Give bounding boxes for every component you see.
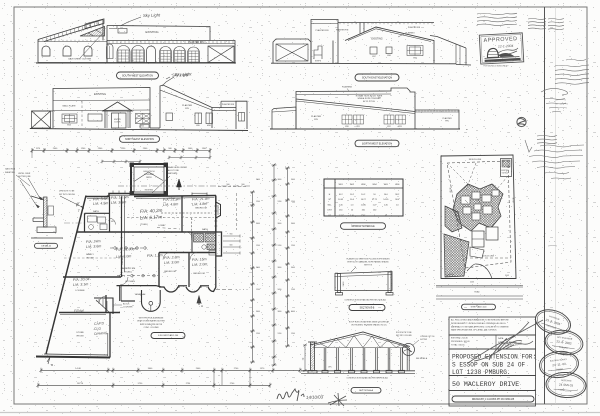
svg-text:W08: W08 — [387, 55, 391, 57]
svg-text:1200: 1200 — [256, 245, 260, 247]
svg-text:3600: 3600 — [291, 223, 295, 225]
svg-text:EXISTING: EXISTING — [145, 190, 154, 192]
svg-text:W10: W10 — [345, 126, 349, 128]
svg-text:1200: 1200 — [291, 333, 295, 335]
svg-text:L/A: 2.0m: L/A: 2.0m — [192, 262, 208, 267]
svg-text:L/A: 3.1m: L/A: 3.1m — [73, 282, 89, 287]
svg-text:STEPS: STEPS — [315, 61, 322, 63]
svg-text:18774: 18774 — [77, 383, 84, 385]
svg-text:LOBBY: LOBBY — [158, 225, 166, 227]
svg-text:SECTION A-A: SECTION A-A — [359, 389, 373, 392]
svg-text:W05: W05 — [196, 125, 200, 127]
svg-text:BATH: BATH — [93, 210, 99, 213]
svg-text:1200: 1200 — [291, 245, 295, 247]
svg-text:RWP DOWN PIPE SET IN: RWP DOWN PIPE SET IN — [140, 324, 163, 326]
svg-text:COVERED: COVERED — [144, 174, 154, 176]
svg-text:ALLS TO BE: ALLS TO BE — [168, 169, 179, 172]
svg-text:L/A: 6.0m: L/A: 6.0m — [116, 254, 132, 259]
svg-text:KITCHEN: KITCHEN — [125, 281, 135, 283]
svg-text:WITH S/L BY GARAGES, ROPE PASS: WITH S/L BY GARAGES, ROPE PASSED SPACED — [347, 261, 389, 264]
svg-text:SOUTH WEST ELEVATION: SOUTH WEST ELEVATION — [122, 74, 153, 77]
svg-text:W13: W13 — [398, 126, 402, 128]
svg-text:1200: 1200 — [291, 289, 295, 291]
svg-text:3600: 3600 — [278, 179, 282, 181]
svg-text:CLG: CLG — [94, 326, 102, 331]
svg-text:1.035: 1.035 — [361, 204, 367, 206]
svg-text:HIGH TECH: HIGH TECH — [144, 171, 156, 173]
svg-text:1200: 1200 — [256, 333, 260, 335]
svg-text:PROPOSED EXTENSION FOR:: PROPOSED EXTENSION FOR: — [452, 354, 536, 361]
svg-text:SHEETING: SHEETING — [5, 172, 15, 174]
svg-text:1200: 1200 — [256, 289, 260, 291]
svg-text:CONC. COLUMN: CONC. COLUMN — [144, 327, 159, 329]
svg-text:PLASTER: PLASTER — [442, 117, 452, 120]
svg-text:50 MACLEROY DRIVE: 50 MACLEROY DRIVE — [452, 381, 519, 388]
svg-text:450: 450 — [446, 275, 449, 277]
svg-text:600: 600 — [230, 245, 233, 247]
svg-text:PLASTER FIN: PLASTER FIN — [336, 29, 349, 32]
svg-text:OUT BLD: OUT BLD — [502, 173, 509, 175]
svg-text:SITE PLAN 1:200: SITE PLAN 1:200 — [471, 306, 488, 309]
svg-text:1200: 1200 — [256, 201, 260, 203]
svg-text:ROOM: ROOM — [87, 258, 94, 260]
svg-text:CONSTRUCTION DETAILS AS PER SE: CONSTRUCTION DETAILS AS PER SECTION A-A — [346, 377, 388, 380]
svg-text:14.05: 14.05 — [383, 199, 389, 201]
svg-text:SET INTO CEILING: SET INTO CEILING — [59, 194, 76, 196]
svg-text:1200: 1200 — [291, 201, 295, 203]
svg-text:SECTION B-B: SECTION B-B — [360, 307, 375, 309]
svg-text:F/A: 1.2m: F/A: 1.2m — [147, 253, 163, 258]
svg-text:EXISTING: EXISTING — [371, 38, 382, 41]
svg-text:3600: 3600 — [256, 223, 260, 225]
svg-text:3M BLDG LINE: 3M BLDG LINE — [469, 159, 482, 161]
svg-text:FIN: FIN — [185, 108, 189, 110]
svg-text:WINDOW SCHEDULE: WINDOW SCHEDULE — [351, 226, 375, 228]
svg-text:30.48: 30.48 — [505, 275, 509, 277]
svg-text:45° 30': 45° 30' — [450, 187, 452, 193]
svg-text:F/A: 2.8m: F/A: 2.8m — [164, 255, 180, 260]
svg-text:W06: W06 — [207, 125, 211, 127]
svg-text:L/A: 3.6m: L/A: 3.6m — [86, 244, 102, 249]
svg-text:LOUNGE: LOUNGE — [75, 290, 85, 292]
svg-text:45° 30': 45° 30' — [513, 197, 515, 203]
svg-text:AT 35 PITCH: AT 35 PITCH — [363, 100, 375, 103]
svg-text:L/A: 3.0m: L/A: 3.0m — [164, 260, 180, 265]
svg-text:PLASTER: PLASTER — [182, 104, 192, 107]
svg-text:FLASHING: FLASHING — [342, 86, 352, 89]
svg-text:FAMILY: FAMILY — [86, 253, 94, 256]
svg-text:MATERIALS TO BE SABS APPROVED.: MATERIALS TO BE SABS APPROVED. CONCRETE … — [451, 325, 510, 328]
svg-text:F/Total: F/Total — [74, 308, 84, 313]
svg-text:ON TRUSSES, TRUSSES SPACED 760: ON TRUSSES, TRUSSES SPACED 760 C/C — [351, 324, 388, 327]
svg-text:14/10/03: 14/10/03 — [306, 394, 324, 400]
svg-text:BEDROOM: BEDROOM — [164, 271, 175, 273]
svg-text:LAUNDRY RM: LAUNDRY RM — [121, 267, 136, 270]
svg-text:900: 900 — [227, 184, 230, 186]
svg-text:10.27: 10.27 — [361, 199, 367, 201]
svg-text:FLASHING: FLASHING — [406, 32, 416, 35]
svg-text:900: 900 — [242, 184, 245, 186]
svg-text:NORTH EAST ELEVATION: NORTH EAST ELEVATION — [125, 138, 154, 141]
svg-text:3600: 3600 — [291, 179, 295, 181]
svg-text:PLASTER FIN: PLASTER FIN — [222, 103, 235, 106]
svg-text:DATE:: DATE: — [498, 337, 504, 340]
svg-text:14.46: 14.46 — [75, 368, 81, 370]
svg-text:B: B — [51, 363, 53, 367]
svg-text:TOTAL: 316.55: TOTAL: 316.55 — [451, 344, 465, 347]
svg-text:WITH T/S: WITH T/S — [364, 265, 373, 267]
svg-text:97.71: 97.71 — [372, 199, 378, 201]
svg-text:WC: WC — [111, 221, 115, 223]
svg-text:F/A: 15m: F/A: 15m — [192, 257, 207, 262]
svg-text:ROOF NOTE TO BE: ROOF NOTE TO BE — [396, 332, 412, 334]
svg-text:WITH PROFILE ALUMINIUM: WITH PROFILE ALUMINIUM — [139, 317, 164, 320]
svg-text:1200: 1200 — [278, 201, 282, 203]
svg-text:900: 900 — [230, 234, 233, 236]
svg-text:GUTTER: GUTTER — [420, 339, 428, 341]
svg-text:PLASTER FIN: PLASTER FIN — [316, 29, 329, 32]
svg-text:DOOR: DOOR — [115, 122, 122, 124]
svg-text:3600: 3600 — [291, 311, 295, 313]
svg-text:DRAWN BY C JACOBS PH 033 38614: DRAWN BY C JACOBS PH 033 3861435 — [472, 398, 515, 401]
svg-text:PROPOSED: 102.09: PROPOSED: 102.09 — [451, 341, 470, 343]
svg-text:SABS SPECIFICATIONS. DPC AT AL: SABS SPECIFICATIONS. DPC AT ALL SALT LEV… — [451, 329, 497, 332]
svg-text:25.63: 25.63 — [470, 282, 474, 284]
svg-text:BATH: BATH — [202, 228, 208, 231]
svg-text:30 BLDG LINE: 30 BLDG LINE — [482, 256, 495, 258]
svg-text:PLASTER 150 SHEETS IN PULLING: PLASTER 150 SHEETS IN PULLING ROPE SPACE… — [346, 258, 390, 261]
svg-text:BEDROOM: BEDROOM — [193, 273, 204, 275]
svg-text:VERANDAH: VERANDAH — [135, 293, 146, 296]
svg-text:STORE: STORE — [76, 332, 84, 334]
svg-text:FIN: FIN — [314, 119, 318, 121]
svg-text:W07: W07 — [372, 56, 376, 58]
svg-text:BEDROOM: BEDROOM — [195, 208, 206, 210]
svg-text:Sky Light: Sky Light — [143, 12, 161, 18]
svg-text:1200: 1200 — [278, 333, 282, 335]
svg-text:EXISTING: EXISTING — [94, 92, 106, 96]
svg-text:LOOKED OUT 150: LOOKED OUT 150 — [420, 336, 434, 338]
svg-text:S ESSOP ON SUB 24 OF: S ESSOP ON SUB 24 OF — [452, 362, 525, 369]
svg-text:EXISTING: 214.46: EXISTING: 214.46 — [451, 338, 468, 340]
svg-text:LOT 1238 PMBURG.: LOT 1238 PMBURG. — [452, 369, 511, 376]
svg-text:MATCHED: MATCHED — [168, 172, 178, 175]
svg-text:PATIO: PATIO — [146, 176, 152, 179]
svg-text:3600: 3600 — [256, 267, 260, 269]
svg-text:2.4 M: 2.4 M — [343, 281, 345, 286]
svg-text:PLASTER FIN: PLASTER FIN — [408, 26, 421, 29]
svg-text:WALL PLATE: WALL PLATE — [62, 105, 76, 108]
svg-text:ROAD: ROAD — [474, 291, 480, 294]
svg-text:EXISTING: EXISTING — [145, 30, 158, 34]
svg-text:F/A: 24m: F/A: 24m — [86, 239, 101, 244]
svg-text:BEAM LEVEL UNDER: BEAM LEVEL UNDER — [168, 166, 188, 169]
svg-text:CAP'D: CAP'D — [94, 321, 105, 326]
svg-text:W: W — [329, 199, 331, 201]
svg-text:3600: 3600 — [278, 267, 282, 269]
svg-text:S/PALE ROPE TRUSSES: S/PALE ROPE TRUSSES — [357, 97, 381, 100]
svg-text:m: m — [466, 129, 468, 131]
svg-text:(TILED): (TILED) — [124, 272, 132, 274]
svg-text:3600: 3600 — [278, 311, 282, 313]
svg-text:W03: W03 — [67, 125, 71, 127]
svg-text:3600: 3600 — [278, 223, 282, 225]
svg-text:L/A: 3.6m: L/A: 3.6m — [111, 200, 127, 205]
svg-text:CONSTRUCTION DETAILS AS PER SE: CONSTRUCTION DETAILS AS PER SECTION A-A — [344, 299, 386, 302]
svg-text:L/A: 4.8m: L/A: 4.8m — [192, 202, 208, 207]
svg-text:BLOCK: BLOCK — [123, 304, 130, 306]
svg-text:FIN: FIN — [445, 121, 449, 123]
svg-text:14.05: 14.05 — [338, 199, 344, 201]
svg-text:FOR MSUNDUZI MUNICIPALITY: FOR MSUNDUZI MUNICIPALITY — [483, 65, 509, 68]
svg-text:DETAIL A: DETAIL A — [41, 245, 51, 248]
svg-text:EXISTING: EXISTING — [501, 170, 509, 172]
svg-text:SEE DETAIL A: SEE DETAIL A — [416, 357, 428, 360]
svg-text:W11: W11 — [356, 126, 359, 128]
svg-text:Sky Light: Sky Light — [175, 71, 193, 77]
svg-text:2.6: 2.6 — [303, 358, 305, 361]
svg-text:1200: 1200 — [278, 289, 282, 291]
svg-text:SOUTH EAST ELEVATION: SOUTH EAST ELEVATION — [362, 76, 392, 79]
svg-text:SET INTO COLUMN: SET INTO COLUMN — [396, 335, 412, 337]
svg-text:ROMAN TILES IN S/LT RATE: ROMAN TILES IN S/LT RATE — [356, 95, 383, 98]
svg-text:COUNTER: COUNTER — [123, 307, 133, 309]
svg-text:L/A: 4.5m: L/A: 4.5m — [93, 201, 109, 206]
svg-text:PLASTER: PLASTER — [311, 115, 321, 118]
svg-text:L/A: 4.8m: L/A: 4.8m — [163, 202, 179, 207]
svg-text:GUTTER LINE: GUTTER LINE — [18, 176, 31, 178]
svg-text:1200: 1200 — [278, 245, 282, 247]
svg-text:ROOF TILES ON BATTENS 38X38 ON: ROOF TILES ON BATTENS 38X38 ON OVERLAY — [349, 321, 390, 324]
svg-text:12-1-2004: 12-1-2004 — [498, 44, 514, 49]
svg-text:(TILED): (TILED) — [140, 224, 148, 226]
svg-text:W09: W09 — [413, 58, 417, 60]
svg-text:ROOM: ROOM — [77, 336, 84, 338]
svg-text:WITH STORM WATER GUTTER: WITH STORM WATER GUTTER — [137, 320, 165, 323]
svg-text:WORK BEGINS. IT LINTELS OVER A: WORK BEGINS. IT LINTELS OVER ALL OPENING… — [451, 322, 506, 325]
svg-text:GALV IRON: GALV IRON — [5, 168, 16, 171]
svg-text:W12: W12 — [387, 126, 391, 128]
svg-text:DPM NOTE TO BE: DPM NOTE TO BE — [59, 191, 75, 193]
svg-text:W02: W02 — [140, 126, 144, 128]
svg-text:NORTH WEST ELEVATION: NORTH WEST ELEVATION — [362, 142, 392, 145]
svg-text:GALV SHEET GUTTER: GALV SHEET GUTTER — [68, 58, 92, 61]
svg-text:3600: 3600 — [291, 267, 295, 269]
svg-text:3600: 3600 — [256, 311, 260, 313]
svg-text:PLASTER FIN: PLASTER FIN — [188, 41, 204, 44]
svg-text:A: A — [201, 304, 203, 308]
svg-text:LINTEL OVER: LINTEL OVER — [18, 173, 31, 175]
svg-text:G FLOOR PLAN 1:100: G FLOOR PLAN 1:100 — [158, 334, 179, 337]
svg-text:3600: 3600 — [256, 179, 260, 181]
svg-text:ALL FIGD, LEVELS AND DIMENSION: ALL FIGD, LEVELS AND DIMENSIONS TO BE CH… — [451, 319, 509, 322]
